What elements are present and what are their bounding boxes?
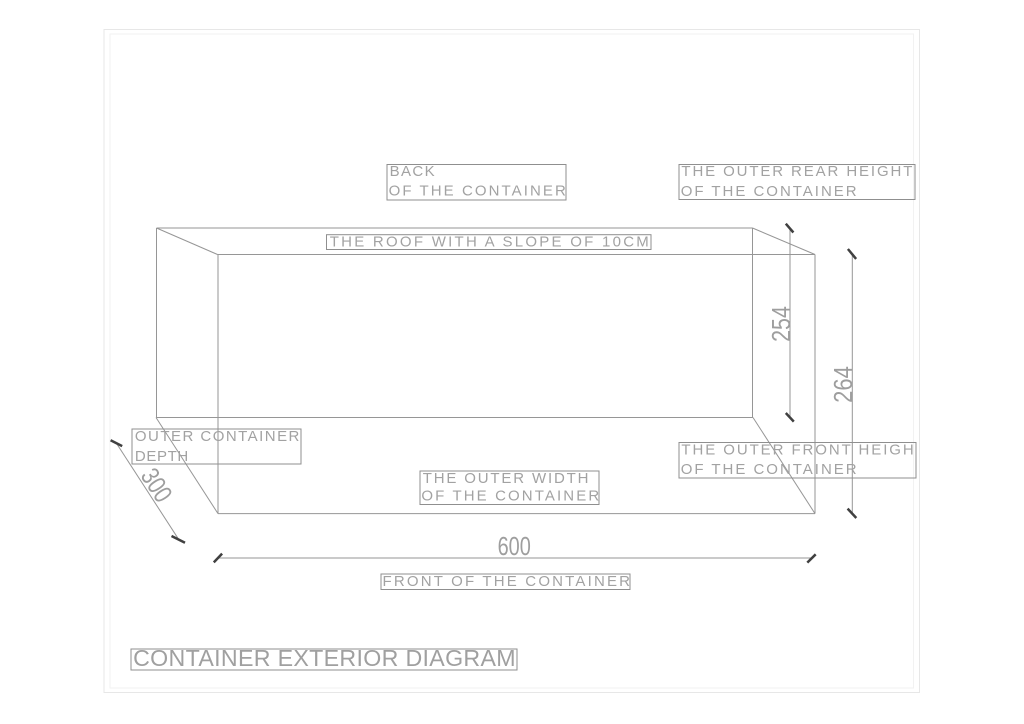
svg-text:264: 264: [829, 366, 858, 403]
svg-text:OF THE CONTAINER: OF THE CONTAINER: [389, 183, 566, 200]
svg-text:254: 254: [767, 306, 796, 342]
svg-text:THE OUTER WIDTH: THE OUTER WIDTH: [423, 470, 589, 487]
svg-text:OF THE CONTAINER: OF THE CONTAINER: [421, 487, 599, 504]
svg-text:OF THE CONTAINER: OF THE CONTAINER: [681, 183, 857, 200]
svg-text:OF THE CONTAINER: OF THE CONTAINER: [681, 461, 857, 478]
svg-text:THE OUTER FRONT HEIGHT: THE OUTER FRONT HEIGHT: [681, 442, 924, 459]
svg-text:FRONT OF THE CONTAINER: FRONT OF THE CONTAINER: [383, 573, 631, 590]
svg-text:OUTER CONTAINER: OUTER CONTAINER: [135, 428, 300, 445]
svg-text:THE ROOF WITH A SLOPE OF 10CM: THE ROOF WITH A SLOPE OF 10CM: [330, 234, 649, 251]
svg-text:300: 300: [135, 463, 178, 507]
svg-text:600: 600: [498, 531, 531, 560]
svg-text:DEPTH: DEPTH: [135, 448, 188, 465]
svg-text:THE OUTER REAR HEIGHT: THE OUTER REAR HEIGHT: [681, 163, 912, 180]
svg-text:CONTAINER EXTERIOR DIAGRAM: CONTAINER EXTERIOR DIAGRAM: [133, 645, 515, 671]
svg-text:BACK: BACK: [390, 163, 435, 180]
